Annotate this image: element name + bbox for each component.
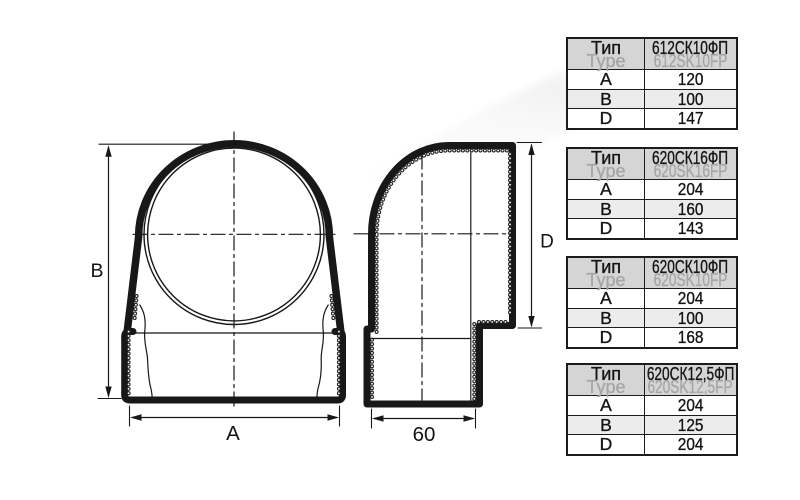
svg-text:A: A: [226, 422, 240, 445]
svg-text:D: D: [540, 231, 554, 252]
svg-text:60: 60: [413, 423, 436, 446]
svg-text:B: B: [90, 260, 103, 282]
